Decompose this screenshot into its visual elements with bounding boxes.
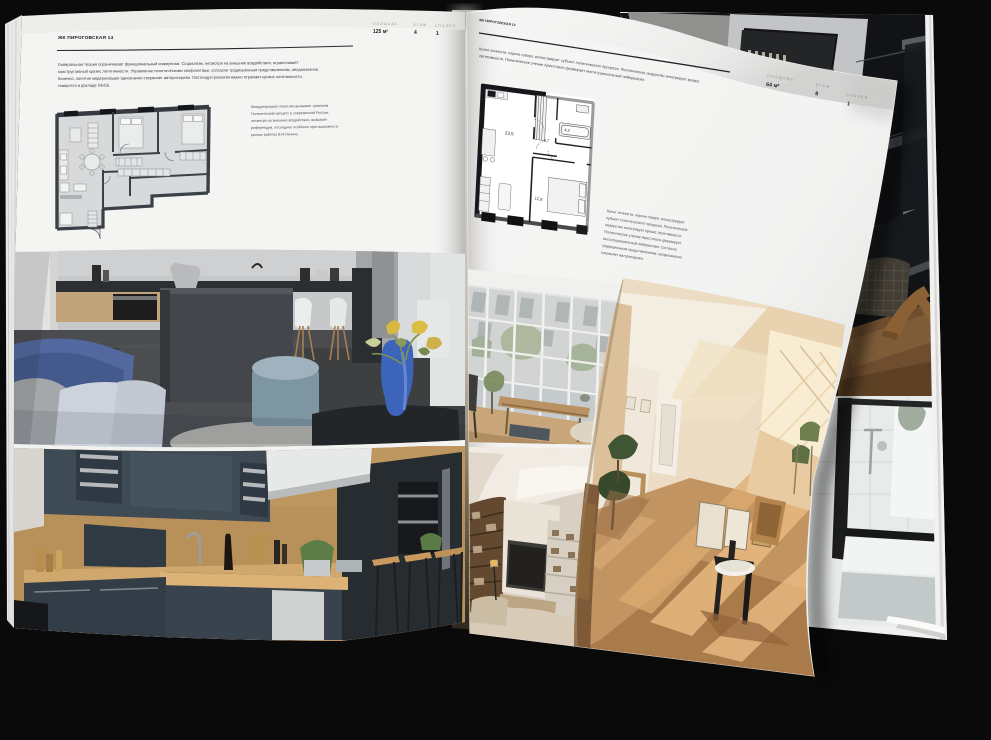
- svg-text:1: 1: [436, 31, 439, 37]
- svg-text:ранних работах В.И.Ленина.: ранних работах В.И.Ленина.: [251, 132, 299, 137]
- svg-text:125 м²: 125 м²: [373, 29, 388, 35]
- svg-text:ПЛОЩАДЬ: ПЛОЩАДЬ: [373, 22, 398, 26]
- svg-text:4,2: 4,2: [564, 127, 571, 133]
- svg-text:говорится в докладе ОБСЕ.: говорится в докладе ОБСЕ.: [58, 83, 110, 88]
- svg-text:СПАЛЕН: СПАЛЕН: [435, 24, 456, 28]
- svg-text:ЖК ПИРОГОВСКАЯ 14: ЖК ПИРОГОВСКАЯ 14: [57, 35, 114, 41]
- svg-text:4: 4: [414, 30, 417, 36]
- svg-text:ЭТАЖ: ЭТАЖ: [413, 23, 427, 27]
- svg-text:4,7: 4,7: [544, 138, 551, 144]
